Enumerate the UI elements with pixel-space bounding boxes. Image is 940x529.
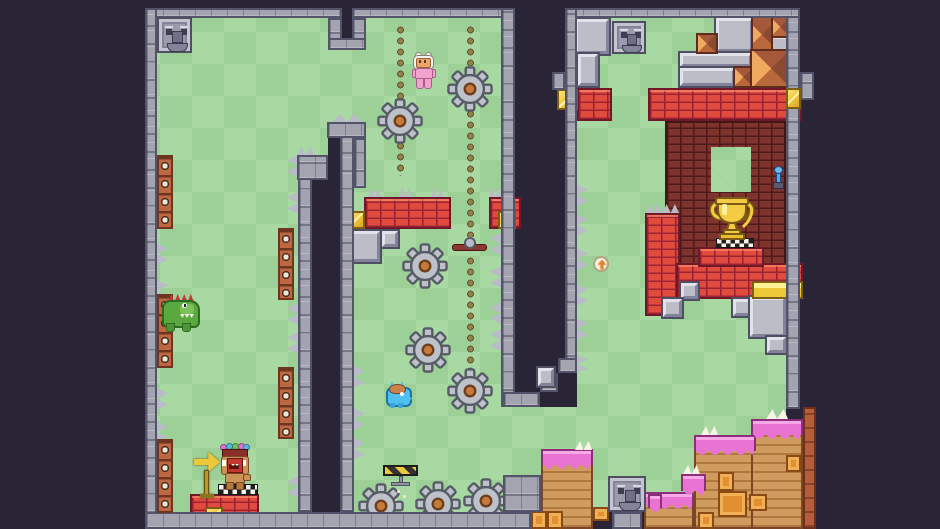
wall-crate-stack <box>157 155 173 229</box>
saw-gear <box>402 243 448 289</box>
wall-step <box>503 392 540 407</box>
stone-block <box>382 231 398 247</box>
face-brow <box>165 26 173 28</box>
wall-crate-stack <box>157 439 173 513</box>
brick-platform <box>648 88 802 121</box>
crate <box>718 491 747 517</box>
gear-track <box>467 26 474 66</box>
gear-track <box>397 26 404 102</box>
alcove-window <box>711 147 751 192</box>
icing-platform <box>648 494 662 508</box>
face-brow <box>180 26 188 28</box>
wall-crate-stack <box>278 228 294 300</box>
totem-leg <box>226 482 234 490</box>
jump-badge[interactable] <box>593 256 609 272</box>
crusher-platform <box>383 465 418 476</box>
hopper-leg <box>398 403 403 408</box>
stone-block <box>350 231 380 262</box>
pyramid-block <box>752 51 790 86</box>
gear-track <box>467 110 474 237</box>
wall-divider <box>298 155 312 512</box>
arrow-sign-base <box>200 494 214 498</box>
wall-divider <box>565 8 577 373</box>
lever-knob <box>774 166 783 174</box>
wall-top <box>352 8 513 18</box>
crate <box>698 512 714 529</box>
face-jaw <box>619 502 641 511</box>
wall-divider <box>340 122 354 512</box>
crate <box>786 455 801 472</box>
stone-block <box>681 283 698 299</box>
trophy-pedestal <box>698 247 764 267</box>
totem-idol[interactable] <box>217 444 251 490</box>
face-block <box>157 17 192 53</box>
stone-block <box>716 18 753 52</box>
face-block <box>608 476 646 512</box>
croc-leg <box>166 323 175 332</box>
wall-segment <box>552 72 565 90</box>
trophy[interactable] <box>705 195 759 241</box>
wall-cap <box>297 155 328 180</box>
pyramid-block <box>735 68 752 86</box>
wall-slot <box>342 8 352 38</box>
lever-base <box>773 182 784 189</box>
stone-block <box>538 368 554 386</box>
hopper-enemy[interactable] <box>385 381 413 409</box>
wall-cap <box>327 122 366 138</box>
player-eye <box>419 60 421 63</box>
face-brow <box>620 29 628 31</box>
wall-bottom <box>145 512 531 529</box>
propeller-hub <box>464 237 476 249</box>
play-area <box>353 122 501 512</box>
sparkle <box>395 499 397 501</box>
player-leg <box>424 78 432 89</box>
game-viewport[interactable] <box>0 0 940 529</box>
pyramid-block <box>698 35 716 52</box>
sparkle <box>397 490 400 493</box>
face-jaw <box>622 45 642 53</box>
saw-gear <box>447 66 493 112</box>
wall-top <box>565 8 800 18</box>
icing-platform <box>681 474 706 491</box>
icing-top <box>541 449 593 465</box>
arrow-sign-pole <box>204 470 209 496</box>
face-brow <box>617 485 625 487</box>
gear-track <box>397 142 404 176</box>
crate <box>531 511 547 529</box>
wall-ledge <box>503 475 541 512</box>
crate <box>593 507 609 521</box>
stone-block <box>575 19 609 54</box>
wall-notch <box>328 38 366 50</box>
face-eye <box>618 488 624 494</box>
stone-block <box>767 337 786 353</box>
brick-platform <box>577 88 612 121</box>
lever[interactable] <box>773 166 782 188</box>
stone-block <box>750 297 786 337</box>
pyramid-block <box>753 18 771 51</box>
stone-block <box>578 54 598 86</box>
coin-block[interactable] <box>786 88 801 109</box>
player-leg <box>416 78 424 89</box>
player-eye <box>424 60 426 63</box>
gear-track <box>467 257 474 369</box>
icing-top <box>694 435 756 451</box>
totem-leg <box>236 482 244 490</box>
hopper-leg <box>390 403 395 408</box>
face-block <box>612 21 646 54</box>
crocodile-enemy[interactable] <box>160 292 200 332</box>
brick-platform <box>364 197 451 229</box>
totem-tail <box>243 474 251 481</box>
wall-crate-stack <box>278 367 294 439</box>
stone-slab <box>680 53 752 67</box>
player-character[interactable] <box>412 52 434 90</box>
stone-block <box>733 299 751 316</box>
wall-step <box>558 358 577 373</box>
totem-eye <box>222 460 226 466</box>
rust-column <box>803 407 816 529</box>
saw-gear <box>405 327 451 373</box>
saw-gear <box>447 368 493 414</box>
face-jaw <box>167 43 188 52</box>
saw-gear <box>377 98 423 144</box>
croc-leg <box>182 323 191 332</box>
stone-slab <box>680 68 735 86</box>
croc-teeth <box>180 314 194 318</box>
wall-divider <box>501 8 515 407</box>
wall-right <box>786 8 800 409</box>
stone-block <box>663 299 682 317</box>
crate <box>547 511 563 529</box>
sparkle <box>403 495 406 498</box>
crate <box>749 494 767 511</box>
wall-left <box>145 8 157 529</box>
icing-top <box>751 419 803 435</box>
face-nose <box>625 490 636 502</box>
up-arrow-icon <box>598 260 607 270</box>
wall-segment <box>612 512 642 529</box>
croc-pupil <box>184 304 186 307</box>
face-brow <box>634 29 642 31</box>
wall-segment <box>354 138 366 188</box>
crate <box>718 472 734 491</box>
face-brow <box>633 485 641 487</box>
face-nose <box>172 31 183 43</box>
wall-segment <box>800 72 814 100</box>
face-nose <box>627 34 637 45</box>
crusher-propeller <box>391 482 410 486</box>
hopper-eye <box>400 392 404 396</box>
